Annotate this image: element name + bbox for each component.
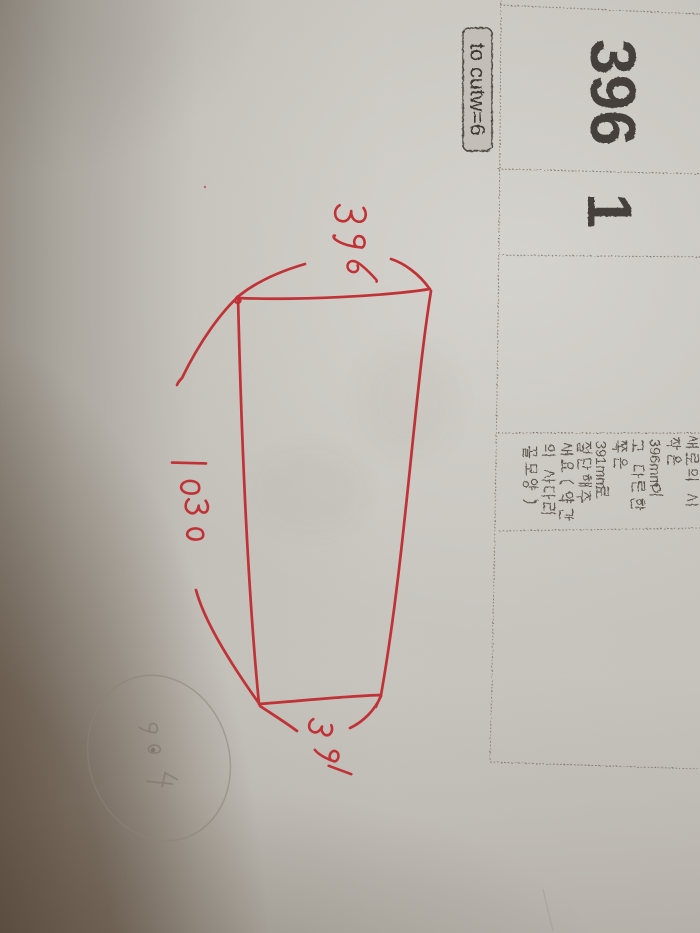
svg-text:1: 1 xyxy=(574,193,644,228)
svg-text:391mm: 391mm xyxy=(592,441,608,489)
svg-text:396mm: 396mm xyxy=(646,439,662,487)
svg-text:to cutw=6: to cutw=6 xyxy=(466,43,490,136)
svg-text:396: 396 xyxy=(577,39,649,146)
